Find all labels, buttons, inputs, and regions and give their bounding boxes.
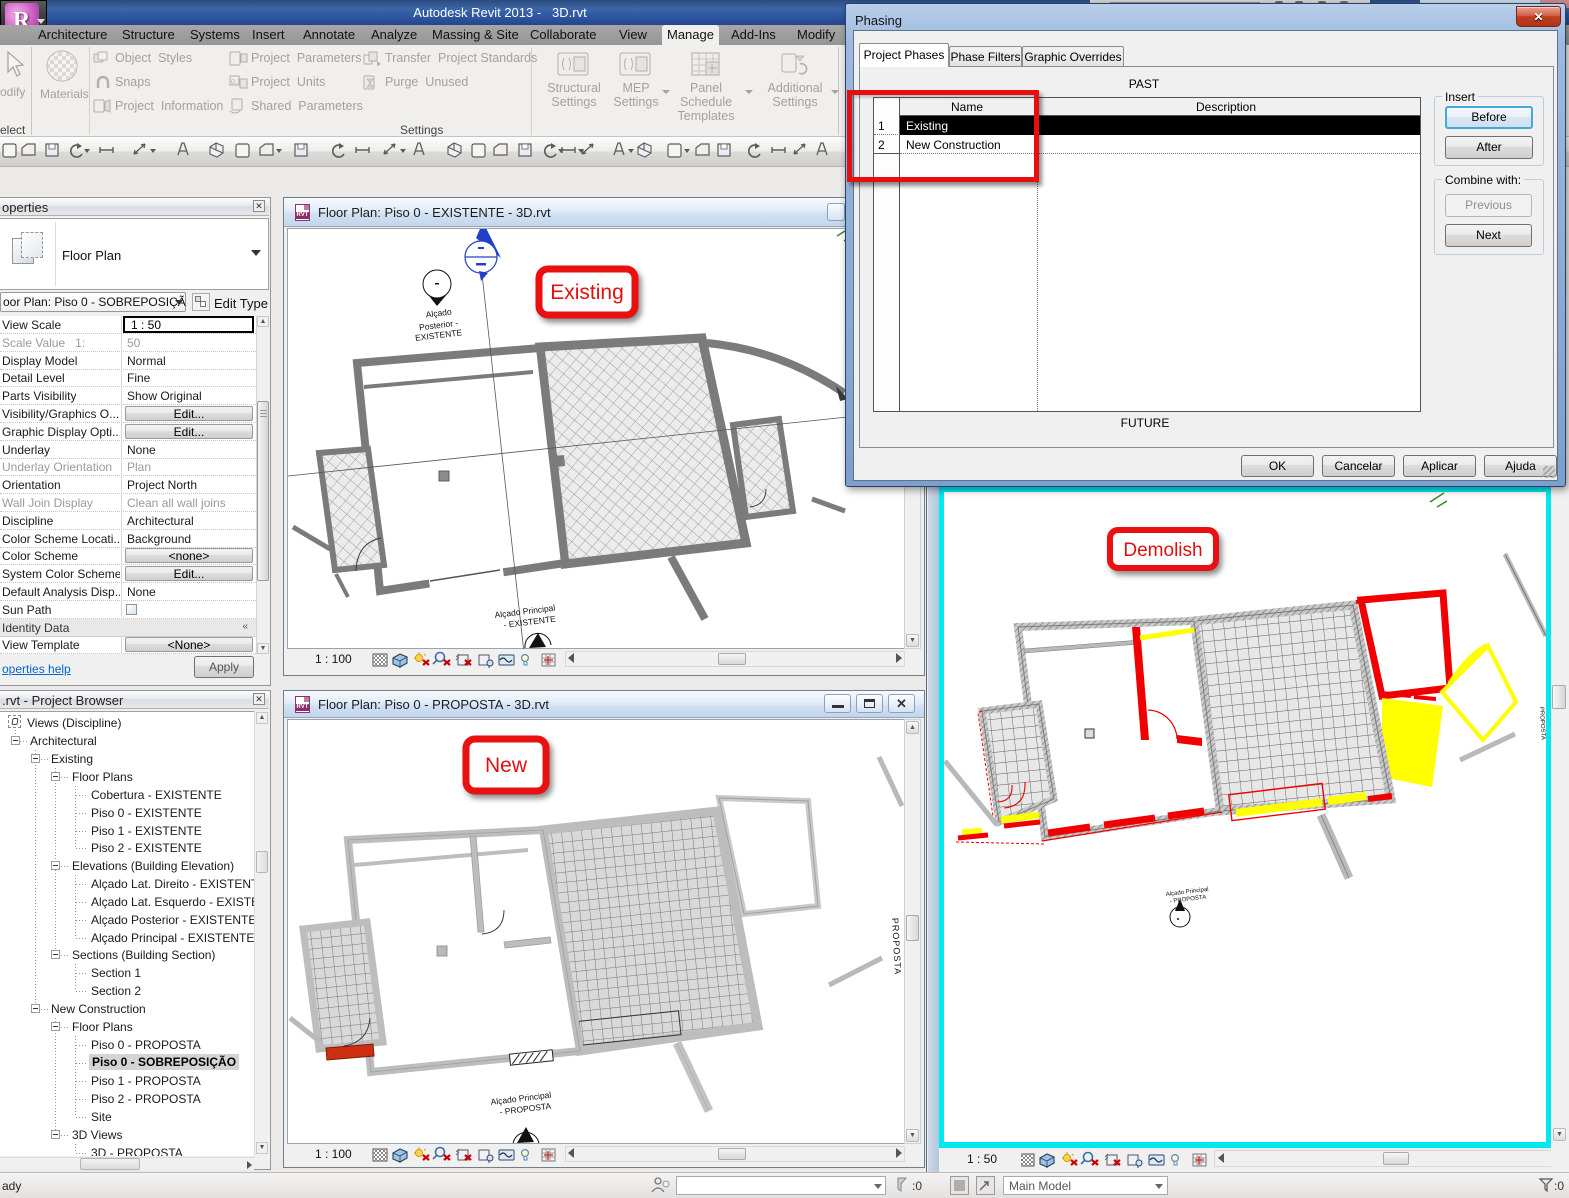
svg-text::0: :0 — [1554, 1179, 1564, 1193]
svg-text:PROPOSTA: PROPOSTA — [1538, 707, 1546, 740]
svg-text:Materials: Materials — [40, 87, 89, 101]
svg-text:Demolish: Demolish — [1123, 540, 1202, 561]
svg-text:PROPOSTA: PROPOSTA — [890, 918, 903, 976]
svg-text:0.1: 0.1 — [231, 79, 241, 86]
svg-text:Existing: Existing — [550, 281, 624, 304]
svg-text:New: New — [485, 754, 528, 777]
svg-text::0: :0 — [912, 1179, 922, 1193]
svg-text:odify: odify — [0, 85, 25, 99]
svg-text:Alçado: Alçado — [425, 306, 452, 319]
